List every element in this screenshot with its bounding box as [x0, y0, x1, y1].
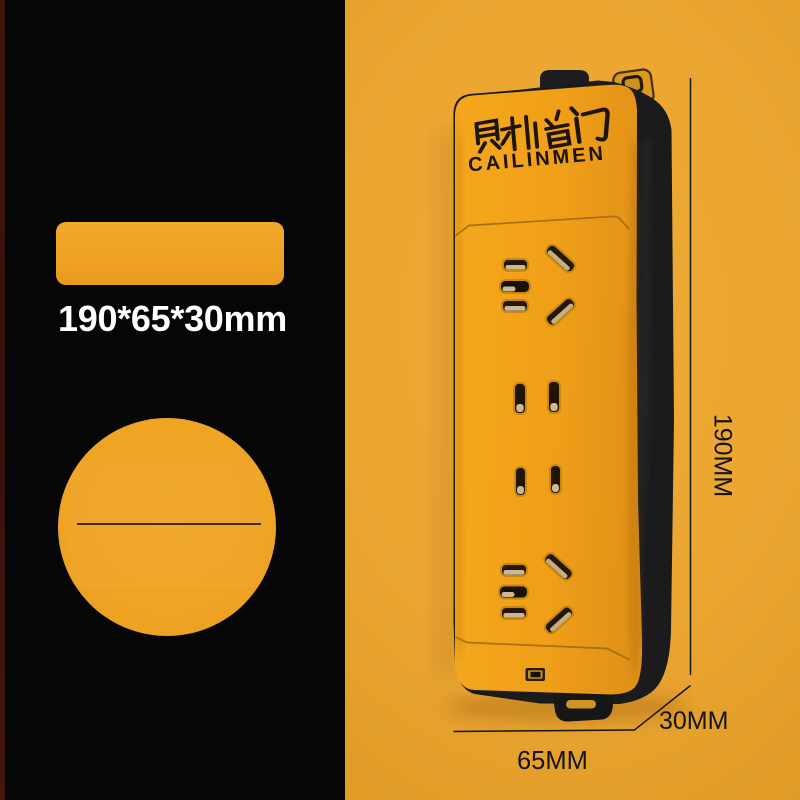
svg-text:190MM: 190MM	[709, 414, 737, 497]
svg-text:30MM: 30MM	[659, 707, 728, 735]
svg-text:65MM: 65MM	[517, 747, 588, 775]
